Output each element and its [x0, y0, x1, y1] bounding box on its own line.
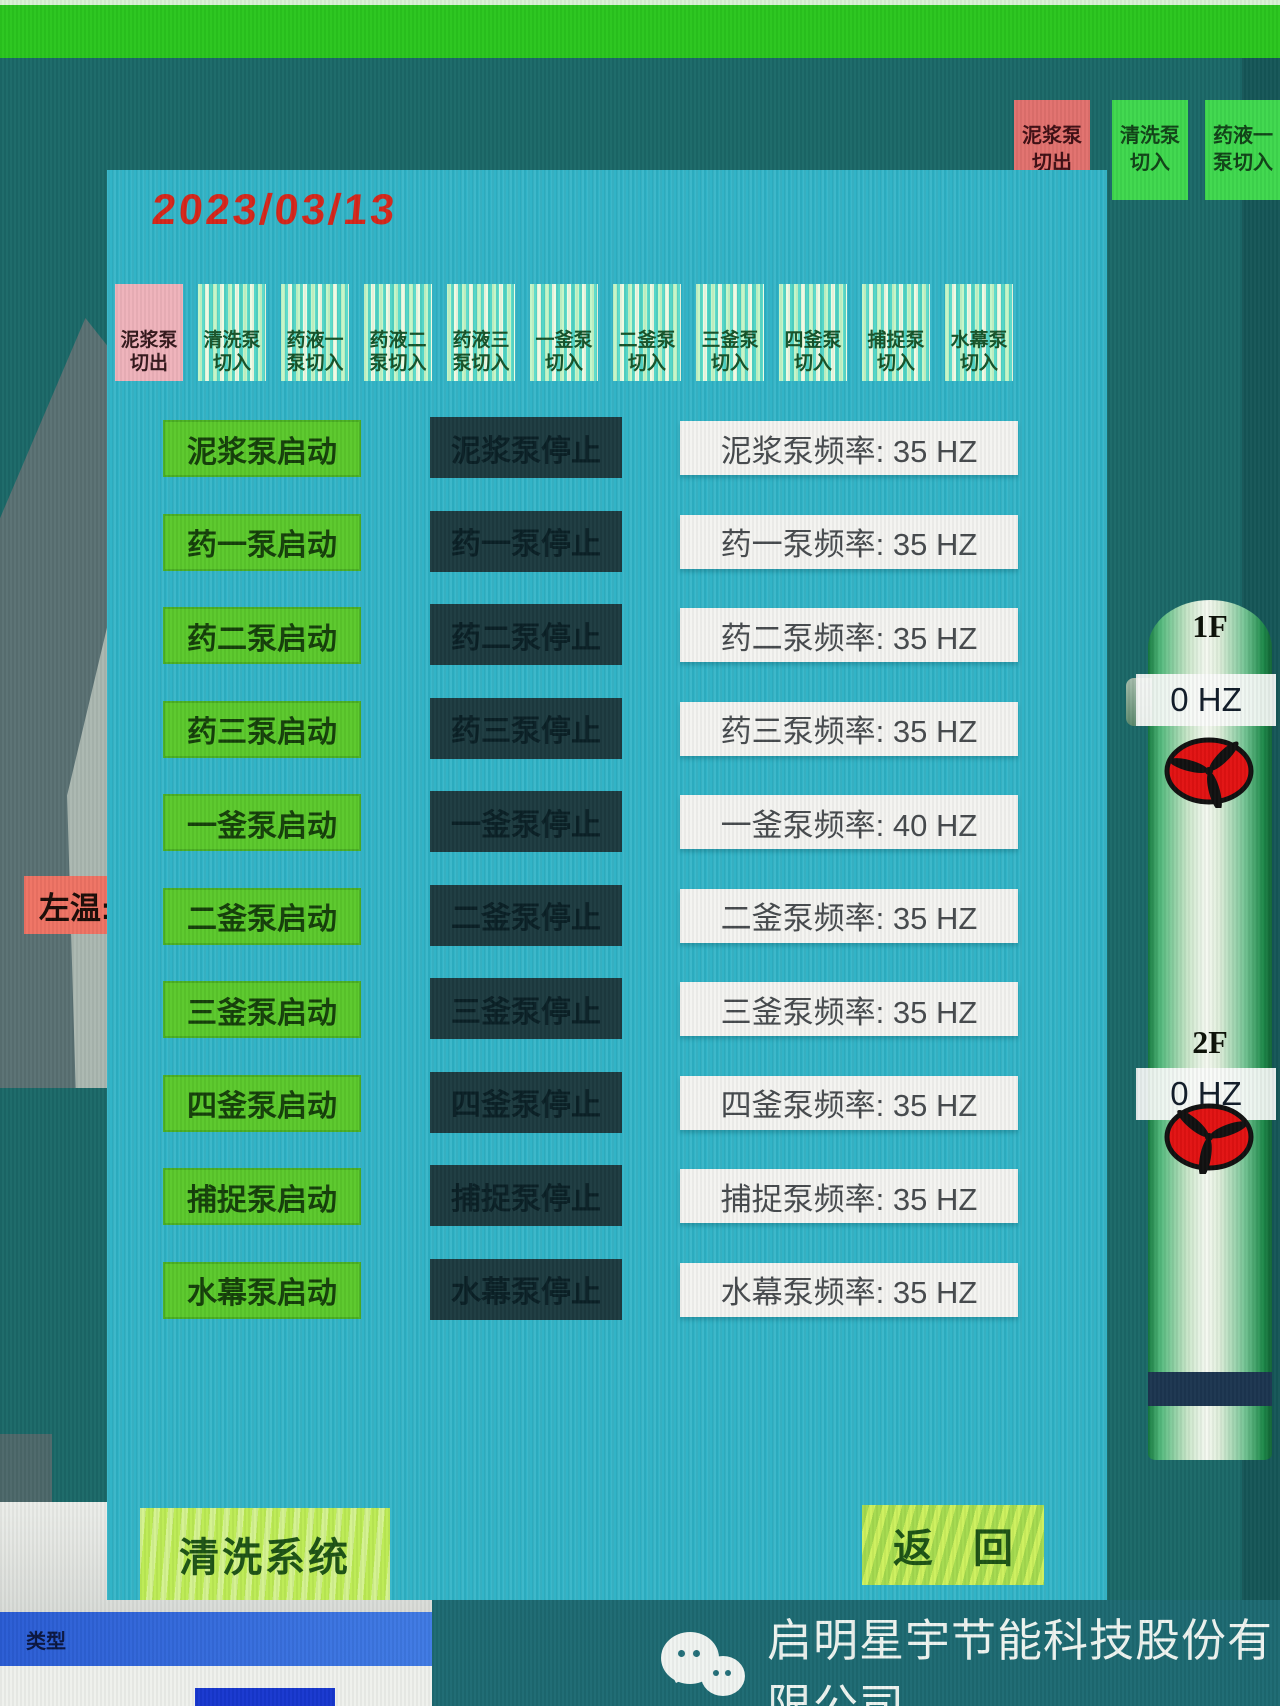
pump-row-kettle4-pump: 四釜泵启动四釜泵停止四釜泵频率: 35 HZ [107, 1075, 1107, 1137]
tab-mud-pump-cutout[interactable]: 泥浆泵切出 [115, 284, 183, 381]
tab-label: 泥浆泵 [120, 329, 177, 353]
left-equipment-graphic [0, 318, 122, 1088]
pump-row-water-curtain-pump: 水幕泵启动水幕泵停止水幕泵频率: 35 HZ [107, 1262, 1107, 1324]
tab-chem2-pump-cutin[interactable]: 药液二泵切入 [364, 284, 432, 381]
left-gray-block [0, 1434, 52, 1504]
chem1-pump-start-button[interactable]: 药一泵启动 [163, 514, 361, 571]
kettle3-pump-start-button[interactable]: 三釜泵启动 [163, 981, 361, 1038]
tab-chem3-pump-cutin[interactable]: 药液三泵切入 [447, 284, 515, 381]
tab-label: 切入 [213, 352, 251, 376]
tab-kettle3-pump-cutin[interactable]: 三釜泵切入 [696, 284, 764, 381]
corner-button-label: 泵切入 [1213, 150, 1273, 177]
tab-label: 切入 [877, 352, 915, 376]
tab-label: 三釜泵 [701, 329, 758, 353]
vessel-1f-frequency: 0 HZ [1136, 674, 1276, 726]
tab-chem1-pump-cutin[interactable]: 药液一泵切入 [281, 284, 349, 381]
pump-row-mud-pump: 泥浆泵启动泥浆泵停止泥浆泵频率: 35 HZ [107, 420, 1107, 482]
pump-row-chem3-pump: 药三泵启动药三泵停止药三泵频率: 35 HZ [107, 701, 1107, 763]
chem2-pump-frequency-display: 药二泵频率: 35 HZ [680, 608, 1018, 662]
kettle4-pump-stop-button[interactable]: 四釜泵停止 [430, 1072, 622, 1133]
pump-row-kettle3-pump: 三釜泵启动三釜泵停止三釜泵频率: 35 HZ [107, 981, 1107, 1043]
water-curtain-pump-start-button[interactable]: 水幕泵启动 [163, 1262, 361, 1319]
wechat-icon [655, 1624, 759, 1706]
fan-icon [1161, 734, 1257, 808]
date-display: 2023/03/13 [150, 186, 400, 235]
corner-button-label: 切入 [1130, 150, 1170, 177]
chem1-pump-stop-button[interactable]: 药一泵停止 [430, 511, 622, 572]
capture-pump-stop-button[interactable]: 捕捉泵停止 [430, 1165, 622, 1226]
chem3-pump-stop-button[interactable]: 药三泵停止 [430, 698, 622, 759]
mud-pump-frequency-display: 泥浆泵频率: 35 HZ [680, 421, 1018, 475]
chem3-pump-start-button[interactable]: 药三泵启动 [163, 701, 361, 758]
corner-wash-pump-cutin-button[interactable]: 清洗泵 切入 [1112, 100, 1188, 200]
background-window-blue-chip [195, 1688, 335, 1706]
kettle1-pump-stop-button[interactable]: 一釜泵停止 [430, 791, 622, 852]
kettle2-pump-stop-button[interactable]: 二釜泵停止 [430, 885, 622, 946]
watermark: 启明星宇节能科技股份有限公司 [655, 1604, 1280, 1706]
pump-switch-tab-row: 泥浆泵切出清洗泵切入药液一泵切入药液二泵切入药液三泵切入一釜泵切入二釜泵切入三釜… [115, 284, 1013, 381]
fan-icon [1161, 1100, 1257, 1174]
vessel-2f-label: 2F [1148, 1024, 1272, 1061]
tab-label: 泵切入 [286, 352, 343, 376]
corner-button-label: 泥浆泵 [1022, 123, 1082, 150]
chem2-pump-stop-button[interactable]: 药二泵停止 [430, 604, 622, 665]
pump-row-kettle1-pump: 一釜泵启动一釜泵停止一釜泵频率: 40 HZ [107, 794, 1107, 856]
tab-kettle4-pump-cutin[interactable]: 四釜泵切入 [779, 284, 847, 381]
capture-pump-start-button[interactable]: 捕捉泵启动 [163, 1168, 361, 1225]
corner-button-label: 药液一 [1213, 123, 1273, 150]
vessel-dark-band [1148, 1372, 1272, 1406]
vessel-graphic: 1F 0 HZ 2F 0 HZ [1148, 600, 1272, 1460]
chem2-pump-start-button[interactable]: 药二泵启动 [163, 607, 361, 664]
clean-system-button[interactable]: 清洗系统 [140, 1508, 390, 1600]
pump-row-chem2-pump: 药二泵启动药二泵停止药二泵频率: 35 HZ [107, 607, 1107, 669]
tab-label: 清洗泵 [203, 329, 260, 353]
tab-label: 切入 [794, 352, 832, 376]
mud-pump-start-button[interactable]: 泥浆泵启动 [163, 420, 361, 477]
tab-capture-pump-cutin[interactable]: 捕捉泵切入 [862, 284, 930, 381]
top-green-bar [0, 0, 1280, 58]
corner-button-label: 清洗泵 [1120, 123, 1180, 150]
capture-pump-frequency-display: 捕捉泵频率: 35 HZ [680, 1169, 1018, 1223]
kettle4-pump-frequency-display: 四釜泵频率: 35 HZ [680, 1076, 1018, 1130]
pump-row-chem1-pump: 药一泵启动药一泵停止药一泵频率: 35 HZ [107, 514, 1107, 576]
tab-label: 药液三 [452, 329, 509, 353]
chem1-pump-frequency-display: 药一泵频率: 35 HZ [680, 515, 1018, 569]
tab-kettle1-pump-cutin[interactable]: 一釜泵切入 [530, 284, 598, 381]
vessel-1f-label: 1F [1148, 608, 1272, 645]
tab-water-curtain-pump-cutin[interactable]: 水幕泵切入 [945, 284, 1013, 381]
kettle3-pump-stop-button[interactable]: 三釜泵停止 [430, 978, 622, 1039]
water-curtain-pump-stop-button[interactable]: 水幕泵停止 [430, 1259, 622, 1320]
tab-label: 切入 [711, 352, 749, 376]
kettle2-pump-frequency-display: 二釜泵频率: 35 HZ [680, 889, 1018, 943]
tab-label: 切入 [628, 352, 666, 376]
background-window-titlebar: 类型 [0, 1612, 432, 1666]
main-panel: 2023/03/13 泥浆泵切出清洗泵切入药液一泵切入药液二泵切入药液三泵切入一… [107, 170, 1107, 1600]
type-label: 类型 [26, 1625, 66, 1654]
tab-label: 一釜泵 [535, 329, 592, 353]
pump-row-capture-pump: 捕捉泵启动捕捉泵停止捕捉泵频率: 35 HZ [107, 1168, 1107, 1230]
tab-label: 药液二 [369, 329, 426, 353]
kettle4-pump-start-button[interactable]: 四釜泵启动 [163, 1075, 361, 1132]
kettle1-pump-frequency-display: 一釜泵频率: 40 HZ [680, 795, 1018, 849]
tab-wash-pump-cutin[interactable]: 清洗泵切入 [198, 284, 266, 381]
tab-label: 药液一 [286, 329, 343, 353]
mud-pump-stop-button[interactable]: 泥浆泵停止 [430, 417, 622, 478]
chem3-pump-frequency-display: 药三泵频率: 35 HZ [680, 702, 1018, 756]
corner-chem1-pump-cutin-button[interactable]: 药液一 泵切入 [1205, 100, 1280, 200]
kettle2-pump-start-button[interactable]: 二釜泵启动 [163, 888, 361, 945]
water-curtain-pump-frequency-display: 水幕泵频率: 35 HZ [680, 1263, 1018, 1317]
tab-label: 四釜泵 [784, 329, 841, 353]
tab-label: 泵切入 [452, 352, 509, 376]
tab-label: 水幕泵 [950, 329, 1007, 353]
tab-kettle2-pump-cutin[interactable]: 二釜泵切入 [613, 284, 681, 381]
tab-label: 切入 [960, 352, 998, 376]
tab-label: 泵切入 [369, 352, 426, 376]
kettle1-pump-start-button[interactable]: 一釜泵启动 [163, 794, 361, 851]
kettle3-pump-frequency-display: 三釜泵频率: 35 HZ [680, 982, 1018, 1036]
back-button[interactable]: 返 回 [862, 1505, 1044, 1585]
tab-label: 捕捉泵 [867, 329, 924, 353]
tab-label: 切入 [545, 352, 583, 376]
tab-label: 二釜泵 [618, 329, 675, 353]
hmi-screen: 左温: 类型 泥浆泵 切出 清洗泵 切入 药液一 泵切入 2023/03/13 … [0, 0, 1280, 1706]
tab-label: 切出 [130, 352, 168, 376]
company-watermark-text: 启明星宇节能科技股份有限公司 [767, 1604, 1280, 1706]
pump-row-kettle2-pump: 二釜泵启动二釜泵停止二釜泵频率: 35 HZ [107, 888, 1107, 950]
